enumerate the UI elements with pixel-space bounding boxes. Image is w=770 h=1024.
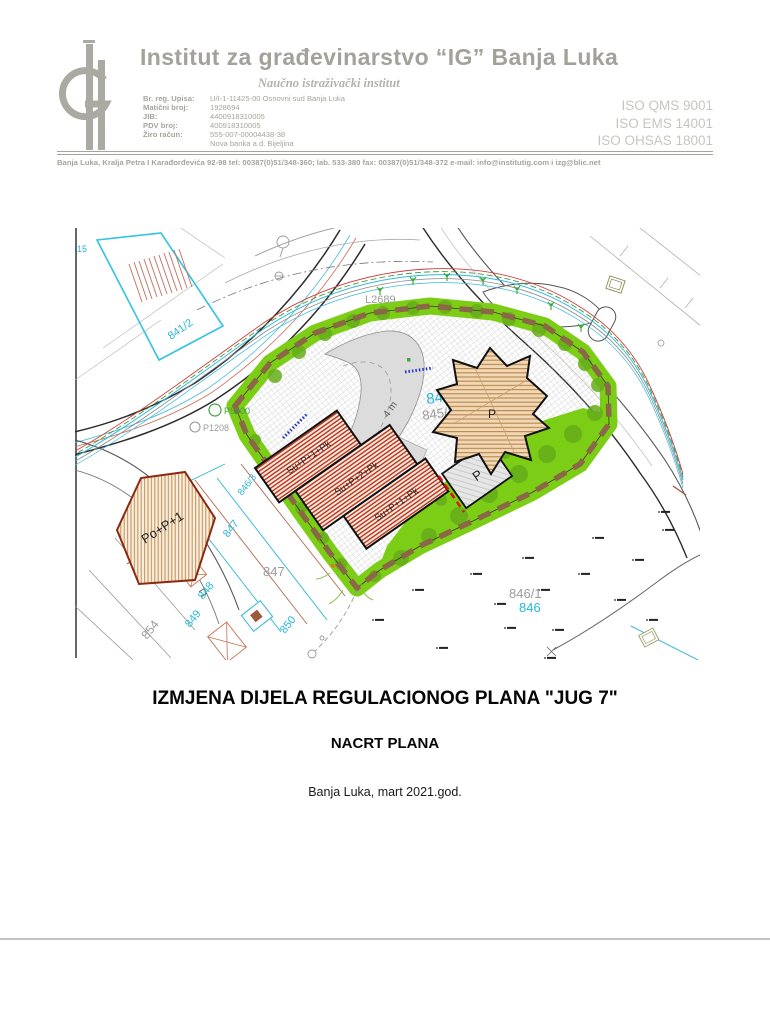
parcel-854-label: 854 (138, 617, 162, 642)
institute-subtitle: Naučno istraživački institut (258, 76, 400, 91)
institute-logo (57, 38, 121, 158)
road-l2689-label: L2689 (365, 294, 396, 306)
document-title: IZMJENA DIJELA REGULACIONOG PLANA "JUG 7… (0, 688, 770, 710)
registry-row: Žiro račun:555-007-00004438-38 (143, 130, 345, 139)
registry-row: Nova banka a.d. Bijeljina (143, 139, 345, 148)
parcel-848-label: 848 (196, 580, 217, 602)
parcel-850-label: 850 (278, 614, 299, 636)
iso-certifications: ISO QMS 9001 ISO EMS 14001 ISO OHSAS 180… (597, 97, 713, 150)
parcel-15-label: 15 (77, 244, 87, 254)
registry-block: Br. reg. Upisa:U/I-1-11425-00 Osnovni su… (143, 94, 345, 148)
point-p1208-label: P1208 (203, 423, 229, 433)
registry-row: JIB:4400918310005 (143, 112, 345, 121)
registry-row: Br. reg. Upisa:U/I-1-11425-00 Osnovni su… (143, 94, 345, 103)
document-subtitle: NACRT PLANA (0, 735, 770, 752)
parcel-846-label: 846 (519, 600, 541, 615)
contact-line: Banja Luka, Kralja Petra I Karađorđevića… (57, 158, 717, 167)
iso-cert: ISO OHSAS 18001 (597, 132, 713, 150)
registry-row: PDV broj:400918310005 (143, 121, 345, 130)
parcel-841-2-shape (97, 233, 223, 360)
bottom-divider (0, 938, 770, 940)
registry-row: Matični broj:1928694 (143, 103, 345, 112)
iso-cert: ISO EMS 14001 (597, 115, 713, 133)
iso-cert: ISO QMS 9001 (597, 97, 713, 115)
parcel-841-2-label: 841/2 (166, 317, 195, 343)
ig-monogram-icon (57, 38, 121, 158)
parcel-847-gray-label: 847 (263, 564, 285, 579)
site-plan-map: 845 845/1 (75, 228, 700, 660)
parcel-849-label: 849 (183, 608, 204, 630)
parcel-846-3-label: 846/3 (236, 472, 259, 498)
header-divider (57, 151, 713, 155)
point-p5500-label: P5500 (224, 406, 250, 416)
parcel-846-1-label: 846/1 (509, 586, 542, 601)
place-and-date: Banja Luka, mart 2021.god. (0, 785, 770, 799)
institute-name: Institut za građevinarstvo “IG” Banja Lu… (140, 44, 618, 71)
green-point-mark (407, 358, 411, 362)
star-building-label: P (488, 407, 496, 421)
site-plan-drawing: 845 845/1 (75, 228, 700, 660)
